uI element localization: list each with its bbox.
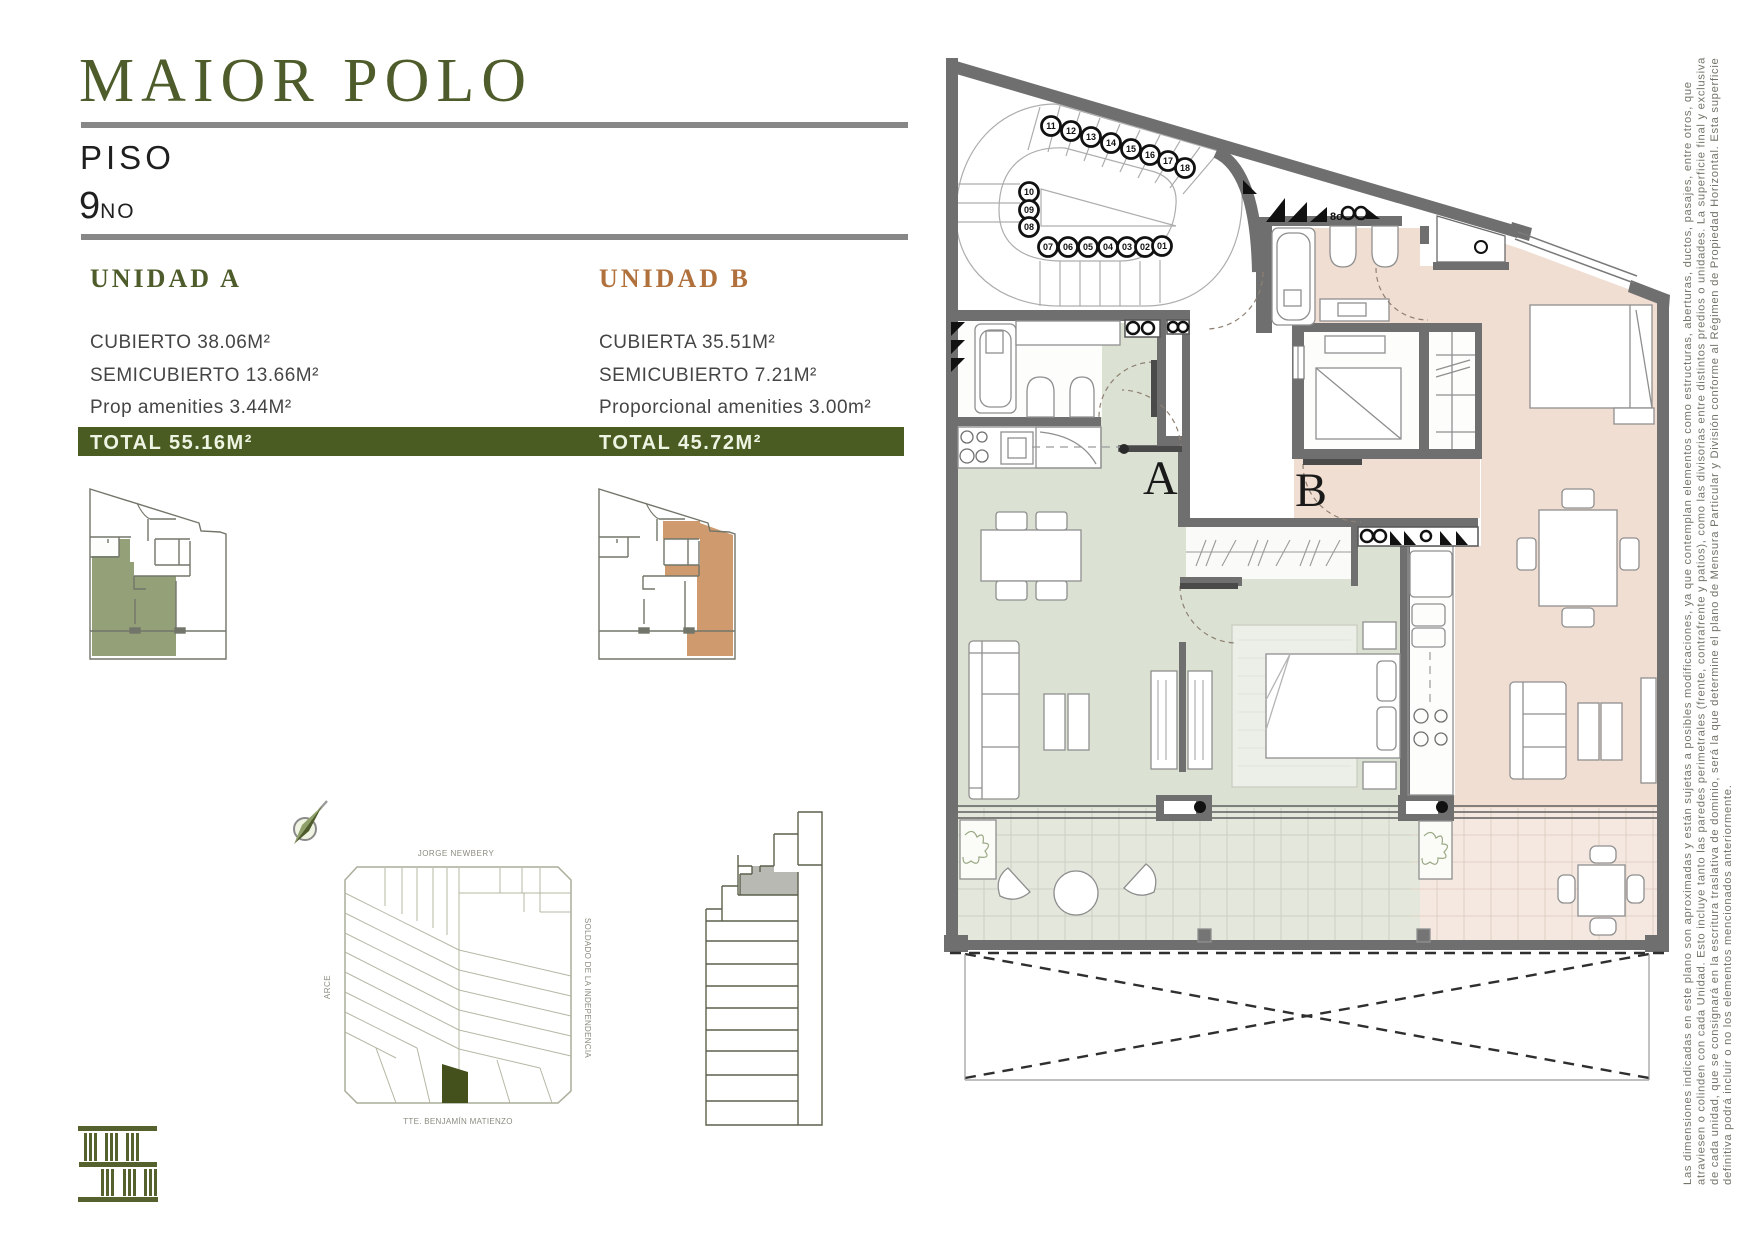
svg-text:atraviesen o colinden con cada: atraviesen o colinden con cada Unidad. E… (1696, 57, 1708, 1185)
svg-text:SOLDADO DE LA INDEPENDENCIA: SOLDADO DE LA INDEPENDENCIA (583, 918, 592, 1058)
svg-text:CUBIERTO 38.06M²: CUBIERTO 38.06M² (90, 332, 270, 353)
svg-text:TOTAL 55.16M²: TOTAL 55.16M² (90, 432, 253, 454)
svg-text:CUBIERTA 35.51M²: CUBIERTA 35.51M² (599, 332, 775, 353)
svg-text:12: 12 (1066, 126, 1076, 136)
svg-text:03: 03 (1122, 242, 1132, 252)
svg-text:01: 01 (1157, 241, 1167, 251)
svg-text:04: 04 (1103, 242, 1113, 252)
svg-text:JORGE NEWBERY: JORGE NEWBERY (418, 849, 495, 858)
svg-text:PISO: PISO (80, 139, 175, 176)
svg-text:TTE. BENJAMÍN MATIENZO: TTE. BENJAMÍN MATIENZO (403, 1117, 513, 1126)
svg-text:09: 09 (1024, 205, 1034, 215)
svg-text:A: A (1143, 452, 1178, 505)
svg-text:Las dimensiones indicadas en e: Las dimensiones indicadas en este plano … (1682, 81, 1694, 1185)
svg-text:14: 14 (1106, 138, 1116, 148)
svg-text:ARCE: ARCE (323, 975, 332, 999)
svg-text:de cada unidad, que se consign: de cada unidad, que se consignará en la … (1709, 57, 1721, 1185)
svg-text:07: 07 (1043, 242, 1053, 252)
svg-text:18: 18 (1180, 163, 1190, 173)
svg-text:definitiva podrá incluir o no: definitiva podrá incluir o no los elemen… (1722, 784, 1734, 1185)
svg-text:06: 06 (1063, 242, 1073, 252)
svg-text:SEMICUBIERTO 13.66M²: SEMICUBIERTO 13.66M² (90, 365, 319, 386)
svg-text:Proporcional amenities 3.00m²: Proporcional amenities 3.00m² (599, 397, 871, 418)
svg-text:MAIOR POLO: MAIOR POLO (79, 47, 533, 115)
svg-text:17: 17 (1163, 156, 1173, 166)
svg-text:08: 08 (1024, 222, 1034, 232)
svg-text:15: 15 (1126, 144, 1136, 154)
svg-text:UNIDAD A: UNIDAD A (90, 264, 242, 293)
svg-text:13: 13 (1086, 132, 1096, 142)
svg-text:10: 10 (1024, 187, 1034, 197)
svg-text:SEMICUBIERTO 7.21M²: SEMICUBIERTO 7.21M² (599, 365, 817, 386)
svg-text:02: 02 (1140, 242, 1150, 252)
svg-text:Prop amenities 3.44M²: Prop amenities 3.44M² (90, 397, 292, 418)
svg-text:UNIDAD B: UNIDAD B (599, 264, 751, 293)
svg-text:B: B (1295, 464, 1327, 517)
svg-text:05: 05 (1083, 242, 1093, 252)
svg-text:11: 11 (1046, 121, 1056, 131)
svg-text:16: 16 (1145, 150, 1155, 160)
svg-text:TOTAL 45.72M²: TOTAL 45.72M² (599, 432, 762, 454)
